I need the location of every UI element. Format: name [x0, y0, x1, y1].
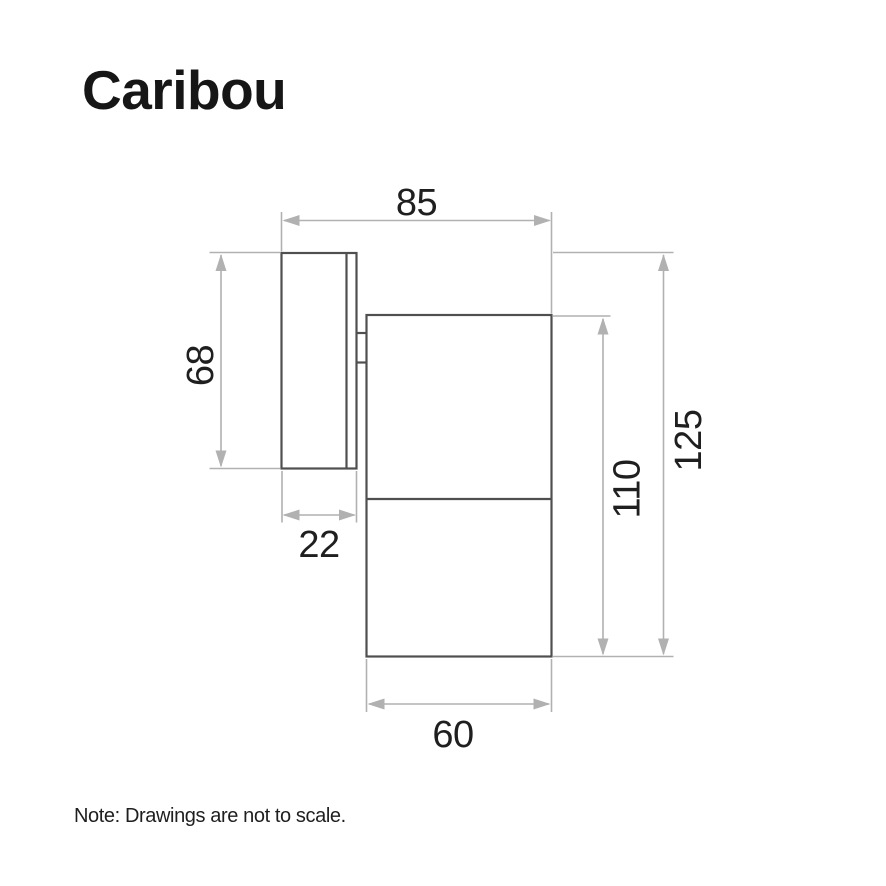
dimension-overall-depth: 85	[282, 182, 552, 314]
dimension-label-body-width: 60	[432, 714, 473, 756]
arrowhead-right-icon	[339, 510, 356, 521]
arrowhead-down-icon	[216, 451, 227, 468]
arrowhead-up-icon	[658, 254, 669, 271]
dimension-backplate-height: 68	[180, 253, 280, 469]
dimension-overall-height: 125	[553, 253, 710, 657]
drawing-canvas: Caribou 85 68	[0, 0, 886, 886]
dimension-label-backplate-depth: 22	[298, 524, 339, 566]
dimension-body-width: 60	[367, 659, 552, 756]
dimension-label-backplate-height: 68	[180, 345, 222, 386]
arrowhead-up-icon	[216, 254, 227, 271]
arrowhead-right-icon	[534, 699, 551, 710]
dimension-label-overall-depth: 85	[396, 182, 437, 224]
arrowhead-left-icon	[368, 699, 385, 710]
arrowhead-down-icon	[658, 639, 669, 656]
arrowhead-down-icon	[598, 639, 609, 656]
dimension-body-height: 110	[553, 316, 648, 656]
arrowhead-left-icon	[283, 510, 300, 521]
dimension-label-body-height: 110	[606, 459, 648, 518]
backplate-outline	[282, 253, 357, 469]
arrowhead-right-icon	[534, 215, 551, 226]
arrowhead-left-icon	[283, 215, 300, 226]
dimension-backplate-depth: 22	[282, 471, 357, 566]
product-outline	[282, 253, 552, 657]
footnote: Note: Drawings are not to scale.	[74, 806, 346, 826]
technical-drawing: 85 68 22 110	[0, 0, 886, 886]
body-outline	[367, 315, 552, 657]
dimension-label-overall-height: 125	[668, 410, 710, 472]
arrowhead-up-icon	[598, 318, 609, 335]
